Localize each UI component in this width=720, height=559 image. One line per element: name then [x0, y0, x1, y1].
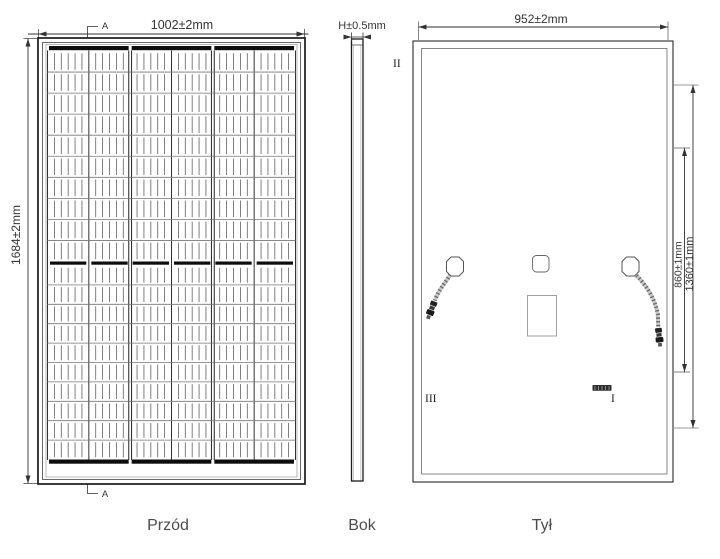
side-view-caption: Bok [302, 517, 422, 535]
front-view-drawing [24, 27, 309, 494]
detail-label-i: I [611, 393, 615, 405]
back-outer-holes-dimension-label: 1360±1mm [684, 204, 696, 324]
side-view-drawing [344, 33, 372, 482]
back-view-caption: Tył [482, 517, 602, 535]
drawing-svg [0, 0, 720, 559]
solar-panel-dimension-drawing: 1002±2mm 1684±2mm A A H±0.5mm 952±2mm 13… [0, 0, 720, 559]
back-inner-holes-dimension-label: 860±1mm [673, 205, 684, 325]
section-a-label-bottom: A [99, 488, 111, 501]
front-width-dimension-label: 1002±2mm [132, 19, 232, 32]
front-view-caption: Przód [108, 517, 228, 535]
section-a-label-top: A [99, 20, 111, 33]
serial-label [593, 385, 612, 391]
detail-label-ii: II [393, 58, 401, 70]
side-thickness-dimension-label: H±0.5mm [312, 20, 412, 33]
detail-label-iii: III [425, 393, 437, 405]
back-width-dimension-label: 952±2mm [491, 13, 591, 26]
front-height-dimension-label: 1684±2mm [10, 175, 24, 295]
back-view-drawing [413, 22, 699, 483]
